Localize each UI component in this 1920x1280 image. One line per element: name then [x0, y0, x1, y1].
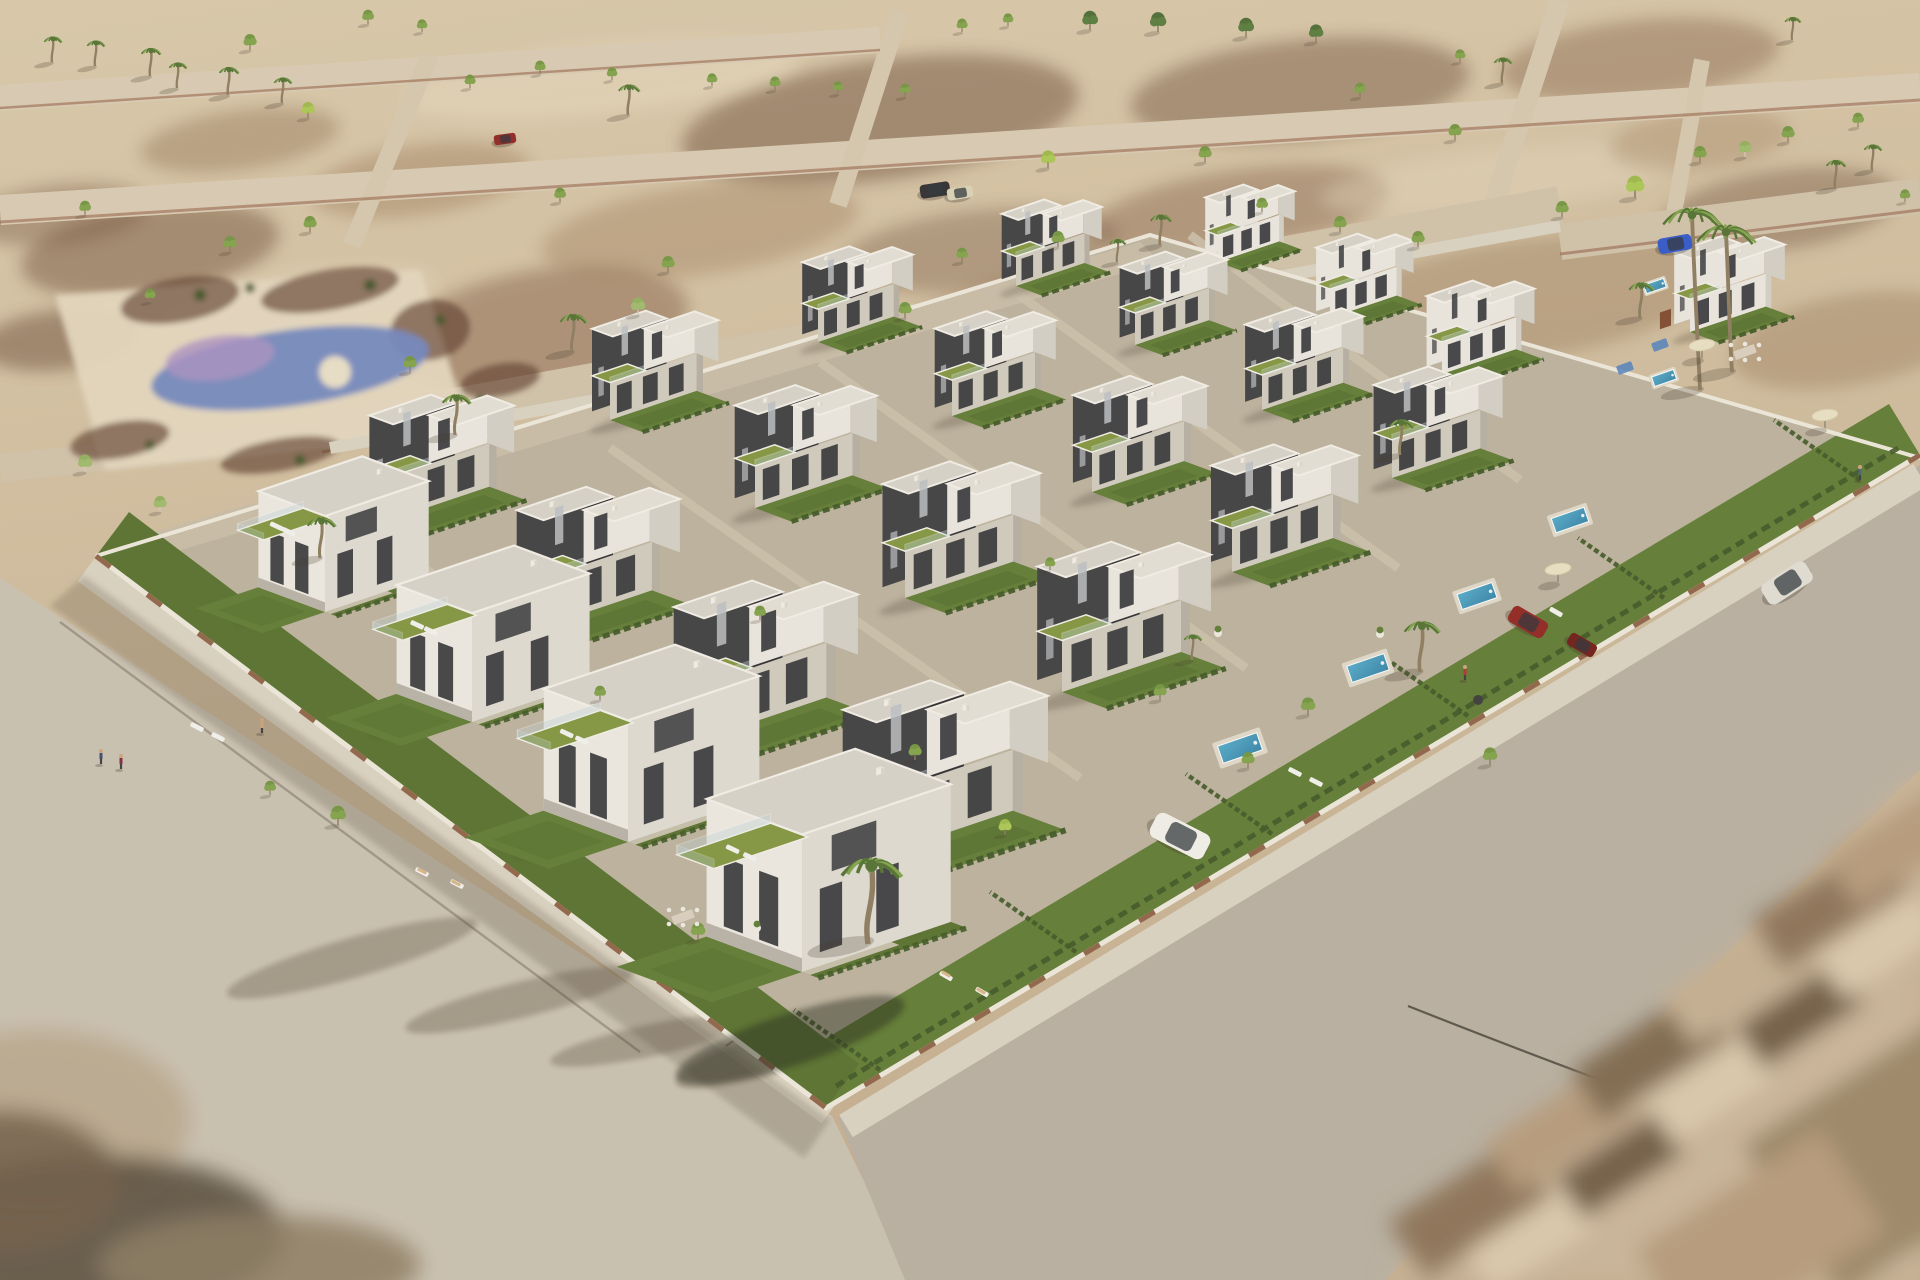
- aerial-architectural-render: [0, 0, 1920, 1280]
- color-grade-overlay: [0, 0, 1920, 1280]
- render-scene-svg: [0, 0, 1920, 1280]
